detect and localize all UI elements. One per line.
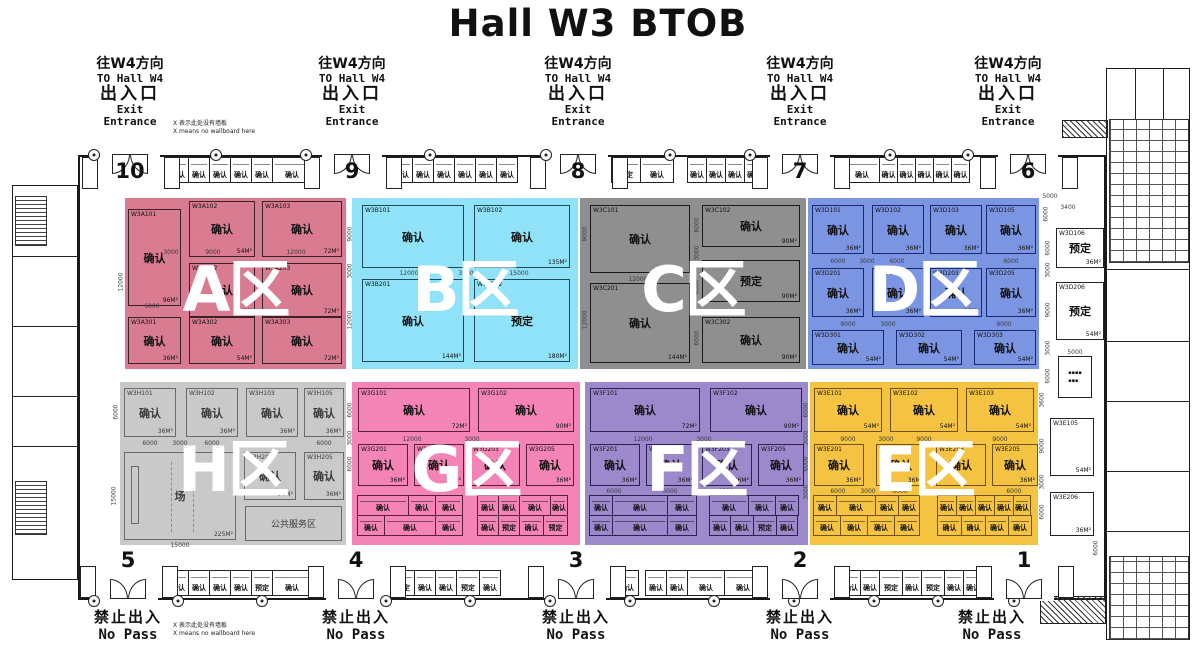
booth-id: W3E101 xyxy=(817,390,842,397)
mini-booth: 确认 xyxy=(709,515,731,536)
dimension-label: 6000 xyxy=(694,330,701,345)
booth-id: W3E103 xyxy=(969,390,994,397)
door-vestibule xyxy=(164,157,180,189)
booth-size: 72M² xyxy=(682,423,697,430)
nopass-label-door-2: 禁止出入No Pass xyxy=(740,608,860,644)
booth-W3D105: W3D105确认36M² xyxy=(986,205,1036,254)
door-number-3: 3 xyxy=(546,548,606,572)
booth-id: W3D102 xyxy=(875,207,901,214)
mini-booth: 预定 xyxy=(543,515,568,536)
wall-booth: 确认 xyxy=(188,157,210,183)
dimension-label: 12000 xyxy=(582,310,589,329)
booth-W3D303: W3D303确认54M² xyxy=(974,330,1036,365)
booth-id: W3A301 xyxy=(131,319,156,326)
booth-W3G203: W3G203确认 xyxy=(470,444,520,486)
booth-id: W3D202 xyxy=(875,270,901,277)
booth-size: 96M² xyxy=(163,297,178,304)
exit-label-door-6: 往W4方向TO Hall W4出入口ExitEntrance xyxy=(948,57,1068,129)
mini-booth: 确认 xyxy=(357,515,385,536)
booth-size: 54M² xyxy=(237,248,252,255)
dimension-label: 6000 xyxy=(1045,368,1052,383)
booth-status: 确认 xyxy=(475,206,569,267)
booth-status: 确认 xyxy=(363,206,463,267)
booth-size: 36M² xyxy=(1018,245,1033,252)
booth-id: W3G101 xyxy=(361,390,387,397)
mini-booth: 确认 xyxy=(975,495,995,516)
mini-booth-row: 确认确认确认 xyxy=(590,496,697,516)
zone-h: W3H101确认36M²W3H102确认36M²W3H103确认36M²W3H1… xyxy=(120,382,346,545)
wall-marker-icon xyxy=(664,149,676,161)
nopass-line-en: No Pass xyxy=(68,627,188,645)
wall-marker-icon xyxy=(210,149,222,161)
wall-booth: 确认 xyxy=(706,157,726,183)
exit-label-door-10: 往W4方向TO Hall W4出入口ExitEntrance xyxy=(70,57,190,129)
booth-id: W3D203 xyxy=(933,270,959,277)
mini-booth: 确认 xyxy=(813,515,841,536)
wall-booth-strip: 预定确认确认预定确认 xyxy=(392,570,501,596)
booth-size: 36M² xyxy=(446,477,461,484)
mini-booth-row: 确认确认确认确认 xyxy=(938,516,1032,536)
mini-booth: 确认 xyxy=(985,515,1009,536)
zone-b: W3B101确认W3B102确认135M²W3B201确认144M²W3B202… xyxy=(352,198,578,369)
exit-label-line: 出入口 xyxy=(740,85,860,104)
mini-booth: 确认 xyxy=(994,495,1014,516)
booth-size: 36M² xyxy=(1086,259,1101,266)
booth-id: W3E202 xyxy=(879,446,904,453)
mini-booth-row: 确认确认确认确认 xyxy=(814,496,920,516)
booth-id: W3E105 xyxy=(1053,420,1078,427)
booth-size: 36M² xyxy=(1018,308,1033,315)
wall-booth: 确认 xyxy=(209,570,231,596)
dimension-label: 12000 xyxy=(633,436,652,443)
booth-size: 144M² xyxy=(442,353,461,360)
booth-id: W3C102 xyxy=(705,207,730,214)
booth-id: W3F201 xyxy=(593,446,618,453)
zone-e: W3E101确认54M²W3E102确认54M²W3E103确认54M²W3E2… xyxy=(810,382,1038,545)
booth-W3G102: W3G102确认90M² xyxy=(478,388,574,432)
dimension-label: 5000 xyxy=(1067,349,1082,356)
booth-id: W3E206 xyxy=(1053,494,1078,501)
booth-id: W3H105 xyxy=(307,390,333,397)
nopass-label-door-3: 禁止出入No Pass xyxy=(516,608,636,644)
mini-booth: 确认 xyxy=(435,515,463,536)
wall-booth: 确认 xyxy=(902,570,922,596)
exit-label-line: 出入口 xyxy=(292,85,412,104)
booth-size: 54M² xyxy=(1086,331,1101,338)
wall-booth: 确认 xyxy=(915,157,934,183)
booth-id: W3E201 xyxy=(817,446,842,453)
booth-id: W3D106 xyxy=(1059,230,1085,237)
booth-W3F203: W3F203确认36M² xyxy=(702,444,752,486)
booth-size: 144M² xyxy=(668,354,687,361)
dimension-label: 6000 xyxy=(347,456,354,471)
booth-id: W3H101 xyxy=(127,390,153,397)
wall-booth: 确认 xyxy=(230,570,252,596)
door-vestibule xyxy=(80,566,96,598)
door-leaf xyxy=(110,579,128,599)
exit-label-line: 出入口 xyxy=(518,85,638,104)
booth-id: W3E205 xyxy=(995,446,1020,453)
booth-id: W3H203 xyxy=(247,454,273,461)
door-vestibule xyxy=(980,157,996,189)
booth-size: 36M² xyxy=(1020,477,1035,484)
booth-W3E203: W3E203确认 xyxy=(936,444,986,486)
wall-booth: 确认 xyxy=(479,570,501,596)
wall-booth: 确认 xyxy=(272,570,312,596)
mini-booth: 确认 xyxy=(519,495,551,516)
dimension-label: 6000 xyxy=(1093,540,1100,555)
door-vestibule xyxy=(82,157,98,189)
door-leaf xyxy=(782,579,800,599)
dimension-label: 3000 xyxy=(1045,262,1052,277)
exit-label-door-7: 往W4方向TO Hall W4出入口ExitEntrance xyxy=(740,57,860,129)
dimension-label: 6000 xyxy=(830,258,845,265)
booth-area xyxy=(131,466,139,524)
exit-label-line: 往W4方向 xyxy=(70,57,190,73)
booth-size: 54M² xyxy=(237,308,252,315)
door-vestibule xyxy=(162,566,178,598)
booth-status: ▪▪▪▪ ▪▪▪ xyxy=(1059,357,1091,397)
exit-label-line: 往W4方向 xyxy=(740,57,860,73)
mini-booth: 确认 xyxy=(589,515,613,536)
dimension-label: 3600 xyxy=(1039,392,1046,407)
door-vestibule xyxy=(304,157,320,189)
door-vestibule xyxy=(610,566,626,598)
booth-id: W3A203 xyxy=(265,265,290,272)
mini-booth-block: 确认确认确认确认确认确认确认确认确认 xyxy=(938,496,1032,536)
wall-booth: 确认 xyxy=(414,570,436,596)
booth-size: 36M² xyxy=(220,428,235,435)
wall-booth: 确认 xyxy=(687,570,725,596)
mini-booth: 确认 xyxy=(408,495,436,516)
dimension-label: 12000 xyxy=(118,272,125,291)
dimension-label: 12000 xyxy=(399,270,418,277)
booth-id: W3A101 xyxy=(131,211,156,218)
booth-size: 36M² xyxy=(280,428,295,435)
door-vestibule xyxy=(752,566,768,598)
door-leaf xyxy=(1024,579,1042,599)
booth-W3A101: W3A101确认96M² xyxy=(128,209,181,306)
booth-size: 36M² xyxy=(964,245,979,252)
dimension-label: 9000 xyxy=(582,226,589,241)
dimension-label: 6000 xyxy=(694,279,701,294)
dimension-label: 9000 xyxy=(1045,302,1052,317)
booth-W3B202: W3B202预定180M² xyxy=(474,279,570,362)
booth-size: 36M² xyxy=(846,308,861,315)
dimension-label: 6000 xyxy=(113,404,120,419)
dimension-label: 6000 xyxy=(803,456,810,471)
booth-id: W3B202 xyxy=(477,281,502,288)
booth-id: W3F101 xyxy=(593,390,618,397)
wall-booth: 确认 xyxy=(435,570,457,596)
booth-W3D103: W3D103确认36M² xyxy=(930,205,982,254)
dimension-label: 3000 xyxy=(464,436,479,443)
door-vestibule xyxy=(308,566,324,598)
booth-id: W3D303 xyxy=(977,332,1003,339)
nopass-line-cn: 禁止出入 xyxy=(740,608,860,627)
booth-id: W3D205 xyxy=(989,270,1015,277)
wall-marker-icon xyxy=(708,595,720,607)
booth-size: 72M² xyxy=(324,308,339,315)
mini-booth-row: 确认确认预定确认 xyxy=(710,516,799,536)
door-vestibule xyxy=(386,157,402,189)
booth-W3E205: W3E205确认36M² xyxy=(992,444,1038,486)
dimension-label: 9000 xyxy=(205,249,220,256)
dimension-label: 9000 xyxy=(347,226,354,241)
door-number-10: 10 xyxy=(100,159,160,183)
mini-booth: 确认 xyxy=(589,495,613,516)
booth-id: W3G205 xyxy=(529,446,555,453)
booth-W3D203: W3D203确认36M² xyxy=(930,268,982,317)
booth-size: 36M² xyxy=(786,477,801,484)
plan-layer: W3A101确认96M²W3A102确认54M²W3A103确认72M²W3A2… xyxy=(0,0,1196,648)
mini-booth: 确认 xyxy=(898,495,920,516)
mini-booth: 确认 xyxy=(937,495,957,516)
dimension-label: 6000 xyxy=(142,440,157,447)
booth-id: W3C302 xyxy=(705,319,730,326)
exit-label-line: 出入口 xyxy=(70,85,190,104)
wall-booth: 确认 xyxy=(725,157,745,183)
wall-booth: 确认 xyxy=(860,570,880,596)
dimension-label: 6000 xyxy=(1006,488,1021,495)
booth-W3F205: W3F205确认36M² xyxy=(758,444,804,486)
door-leaf xyxy=(800,579,818,599)
dimension-label: 3400 xyxy=(1060,204,1075,211)
booth-id: W3C101 xyxy=(593,207,618,214)
mini-booth-row: 确认预定确认预定 xyxy=(478,516,568,536)
booth-size: 36M² xyxy=(964,308,979,315)
booth-id: W3A303 xyxy=(265,319,290,326)
booth-size: 90M² xyxy=(782,293,797,300)
dimension-label: 9000 xyxy=(996,321,1011,328)
wall-booth: 确认 xyxy=(188,570,210,596)
booth-size: 225M² xyxy=(214,531,233,538)
exit-label-line: Entrance xyxy=(518,116,638,128)
dimension-label: 6000 xyxy=(347,402,354,417)
booth-W3C302: W3C302确认90M² xyxy=(702,317,800,363)
wall-booth: 确认 xyxy=(933,157,952,183)
booth-id: W3E102 xyxy=(893,390,918,397)
mini-booth: 确认 xyxy=(384,515,436,536)
door-vestibule xyxy=(528,566,544,598)
wall-booth-strip: 确认确认确认确认确认确认 xyxy=(168,157,312,183)
door-vestibule xyxy=(976,566,992,598)
booth-id: W3F202 xyxy=(649,446,674,453)
nopass-line-cn: 禁止出入 xyxy=(296,608,416,627)
booth-size: 54M² xyxy=(940,423,955,430)
booth-size: 36M² xyxy=(906,308,921,315)
dimension-label: 12000 xyxy=(402,436,421,443)
exit-label-line: 往W4方向 xyxy=(518,57,638,73)
wall-marker-icon xyxy=(88,595,100,607)
dimension-label: 3000 xyxy=(803,484,810,499)
wall-booth-strip: 确认确认确认确认预定确认 xyxy=(168,570,312,596)
dimension-label: 6000 xyxy=(1043,206,1050,221)
booth-W3G201: W3G201确认36M² xyxy=(358,444,408,486)
booth-id: W3A302 xyxy=(192,319,217,326)
dimension-label: 6000 xyxy=(1039,504,1046,519)
dimension-label: 6000 xyxy=(1045,240,1052,255)
booth-W3F202: W3F202确认36M² xyxy=(646,444,696,486)
booth-id: W3F102 xyxy=(713,390,738,397)
door-number-4: 4 xyxy=(326,548,386,572)
booth-id: W3G201 xyxy=(361,446,387,453)
booth-size: 54M² xyxy=(866,356,881,363)
booth-status: 场 xyxy=(125,453,235,539)
mini-booth: 确认 xyxy=(498,495,520,516)
wall-booth: 确认 xyxy=(454,157,476,183)
nopass-line-en: No Pass xyxy=(516,627,636,645)
booth-size: 36M² xyxy=(734,477,749,484)
booth-W3H205: W3H205确认36M² xyxy=(304,452,344,500)
door-number-1: 1 xyxy=(994,548,1054,572)
booth-W3F102: W3F102确认90M² xyxy=(710,388,802,432)
mini-booth-row: 确认确认确认确认 xyxy=(478,496,568,516)
nopass-line-en: No Pass xyxy=(932,627,1052,645)
booth-size: 36M² xyxy=(846,477,861,484)
booth-id: W3B102 xyxy=(477,207,502,214)
mini-booth: 确认 xyxy=(1013,495,1031,516)
booth-W3D202: W3D202确认36M² xyxy=(872,268,924,317)
wall-booth: 确认 xyxy=(251,157,273,183)
door-vestibule xyxy=(530,157,546,189)
booth-id: W3F203 xyxy=(705,446,730,453)
dimension-label: 3000 xyxy=(878,436,893,443)
booth-status: 确认 xyxy=(129,210,180,305)
booth-W3G101: W3G101确认72M² xyxy=(358,388,470,432)
booth-size: 135M² xyxy=(548,259,567,266)
dimension-label: 3000 xyxy=(1045,340,1052,355)
dimension-label: 3000 xyxy=(458,270,473,277)
booth-size: 90M² xyxy=(784,423,799,430)
mini-booth: 确认 xyxy=(836,495,876,516)
dimension-label: 15000 xyxy=(170,542,189,549)
booth-id: W3B201 xyxy=(365,281,390,288)
nopass-line-en: No Pass xyxy=(296,627,416,645)
exit-label-line: Entrance xyxy=(70,116,190,128)
booth-id: W3H103 xyxy=(249,390,275,397)
booth-size: 90M² xyxy=(782,354,797,361)
booth-W3H105: W3H105确认36M² xyxy=(304,388,344,437)
booth-id: W3H205 xyxy=(307,454,333,461)
exit-label-door-8: 往W4方向TO Hall W4出入口ExitEntrance xyxy=(518,57,638,129)
booth-W3F101: W3F101确认72M² xyxy=(590,388,700,432)
booth-W3A102: W3A102确认54M² xyxy=(189,201,255,257)
zone-g: W3G101确认72M²W3G102确认90M²W3G201确认36M²W3G2… xyxy=(352,382,580,545)
wall-booth-strip: 确认确认确认确认 xyxy=(646,570,762,596)
booth-W3D101: W3D101确认36M² xyxy=(812,205,864,254)
door-vestibule xyxy=(1058,566,1074,598)
booth-id: W3F205 xyxy=(761,446,786,453)
booth-id: W3D302 xyxy=(899,332,925,339)
mini-booth: 确认 xyxy=(612,515,668,536)
dimension-label: 3000 xyxy=(163,249,178,256)
mini-booth: 确认 xyxy=(667,495,697,516)
mini-booth: 确认 xyxy=(775,495,799,516)
nopass-label-door-5: 禁止出入No Pass xyxy=(68,608,188,644)
dimension-label: 9000 xyxy=(840,321,855,328)
booth-id: W3D103 xyxy=(933,207,959,214)
booth-id: W3H102 xyxy=(189,390,215,397)
mini-booth: 确认 xyxy=(776,515,798,536)
wall-marker-icon xyxy=(172,595,184,607)
mini-booth: 确认 xyxy=(709,495,749,516)
door-vestibule xyxy=(1062,157,1078,189)
wall-booth: 确认 xyxy=(666,570,688,596)
booth-size: 36M² xyxy=(158,428,173,435)
mini-booth-row: 确认确认确认确认确认 xyxy=(938,496,1032,516)
exit-label-line: 往W4方向 xyxy=(948,57,1068,73)
wall-booth-strip: 确认确认确认确认确认确认 xyxy=(845,157,970,183)
booth-id: W3C201 xyxy=(593,285,618,292)
booth-size: 54M² xyxy=(944,356,959,363)
dimension-label: 15000 xyxy=(111,486,118,505)
booth-W3D106: W3D106预定36M² xyxy=(1056,228,1104,268)
booth-size: 36M² xyxy=(326,491,341,498)
wall-booth: 确认 xyxy=(897,157,916,183)
dimension-label: 6000 xyxy=(316,440,331,447)
mini-booth-block: 确认确认确认确认确认确认确认确认 xyxy=(814,496,920,536)
mini-booth: 确认 xyxy=(961,515,986,536)
booth-W3C202: W3C202预定90M² xyxy=(702,260,800,302)
booth-size: 72M² xyxy=(324,248,339,255)
wall-booth: 确认 xyxy=(496,157,518,183)
zone-c: W3C101确认W3C102确认90M²W3C201确认144M²W3C202预… xyxy=(580,198,806,369)
exit-label-line: Entrance xyxy=(292,116,412,128)
door-number-7: 7 xyxy=(770,159,830,183)
mini-booth: 确认 xyxy=(894,515,920,536)
mini-booth: 确认 xyxy=(937,515,962,536)
dimension-label: 9000 xyxy=(916,436,931,443)
nopass-label-door-4: 禁止出入No Pass xyxy=(296,608,416,644)
dimension-label: 9000 xyxy=(992,436,1007,443)
door-leaf xyxy=(128,579,146,599)
dimension-label: 5000 xyxy=(1042,193,1057,200)
booth-id: W3D201 xyxy=(815,270,841,277)
wall-marker-icon xyxy=(624,595,636,607)
wall-booth: 预定 xyxy=(456,570,480,596)
dimension-label: 6000 xyxy=(1003,258,1018,265)
booth-size: 36M² xyxy=(556,477,571,484)
wall-booth-strip: 确认确认预定确认预定确认确认 xyxy=(842,570,983,596)
zone-f: W3F101确认72M²W3F102确认90M²W3F201确认36M²W3F2… xyxy=(585,382,808,545)
exit-label-line: Entrance xyxy=(740,116,860,128)
wall-marker-icon xyxy=(256,595,268,607)
mini-booth: 确认 xyxy=(550,495,568,516)
dimension-label: 3000 xyxy=(803,430,810,445)
door-leaf xyxy=(356,579,374,599)
wall-marker-icon xyxy=(424,149,436,161)
booth-W3H103: W3H103确认36M² xyxy=(246,388,298,437)
mini-booth: 确认 xyxy=(477,515,499,536)
booth-size: 72M² xyxy=(324,355,339,362)
booth-W3A302: W3A302确认54M² xyxy=(189,317,255,364)
dimension-label: 12000 xyxy=(286,249,305,256)
dimension-label: 6000 xyxy=(889,258,904,265)
nopass-line-cn: 禁止出入 xyxy=(932,608,1052,627)
booth-size: 54M² xyxy=(237,355,252,362)
booth-W3D301: W3D301确认54M² xyxy=(812,330,884,365)
booth-status: 预定 xyxy=(475,280,569,361)
dimension-label: 3000 xyxy=(696,436,711,443)
booth-size: 36M² xyxy=(326,428,341,435)
booth-W3G202: W3G202确认36M² xyxy=(414,444,464,486)
door-leaf xyxy=(1006,579,1024,599)
booth-size: 36M² xyxy=(906,245,921,252)
booth-size: 36M² xyxy=(1076,527,1091,534)
booth-W3E201: W3E201确认36M² xyxy=(814,444,864,486)
mini-booth: 确认 xyxy=(519,515,544,536)
